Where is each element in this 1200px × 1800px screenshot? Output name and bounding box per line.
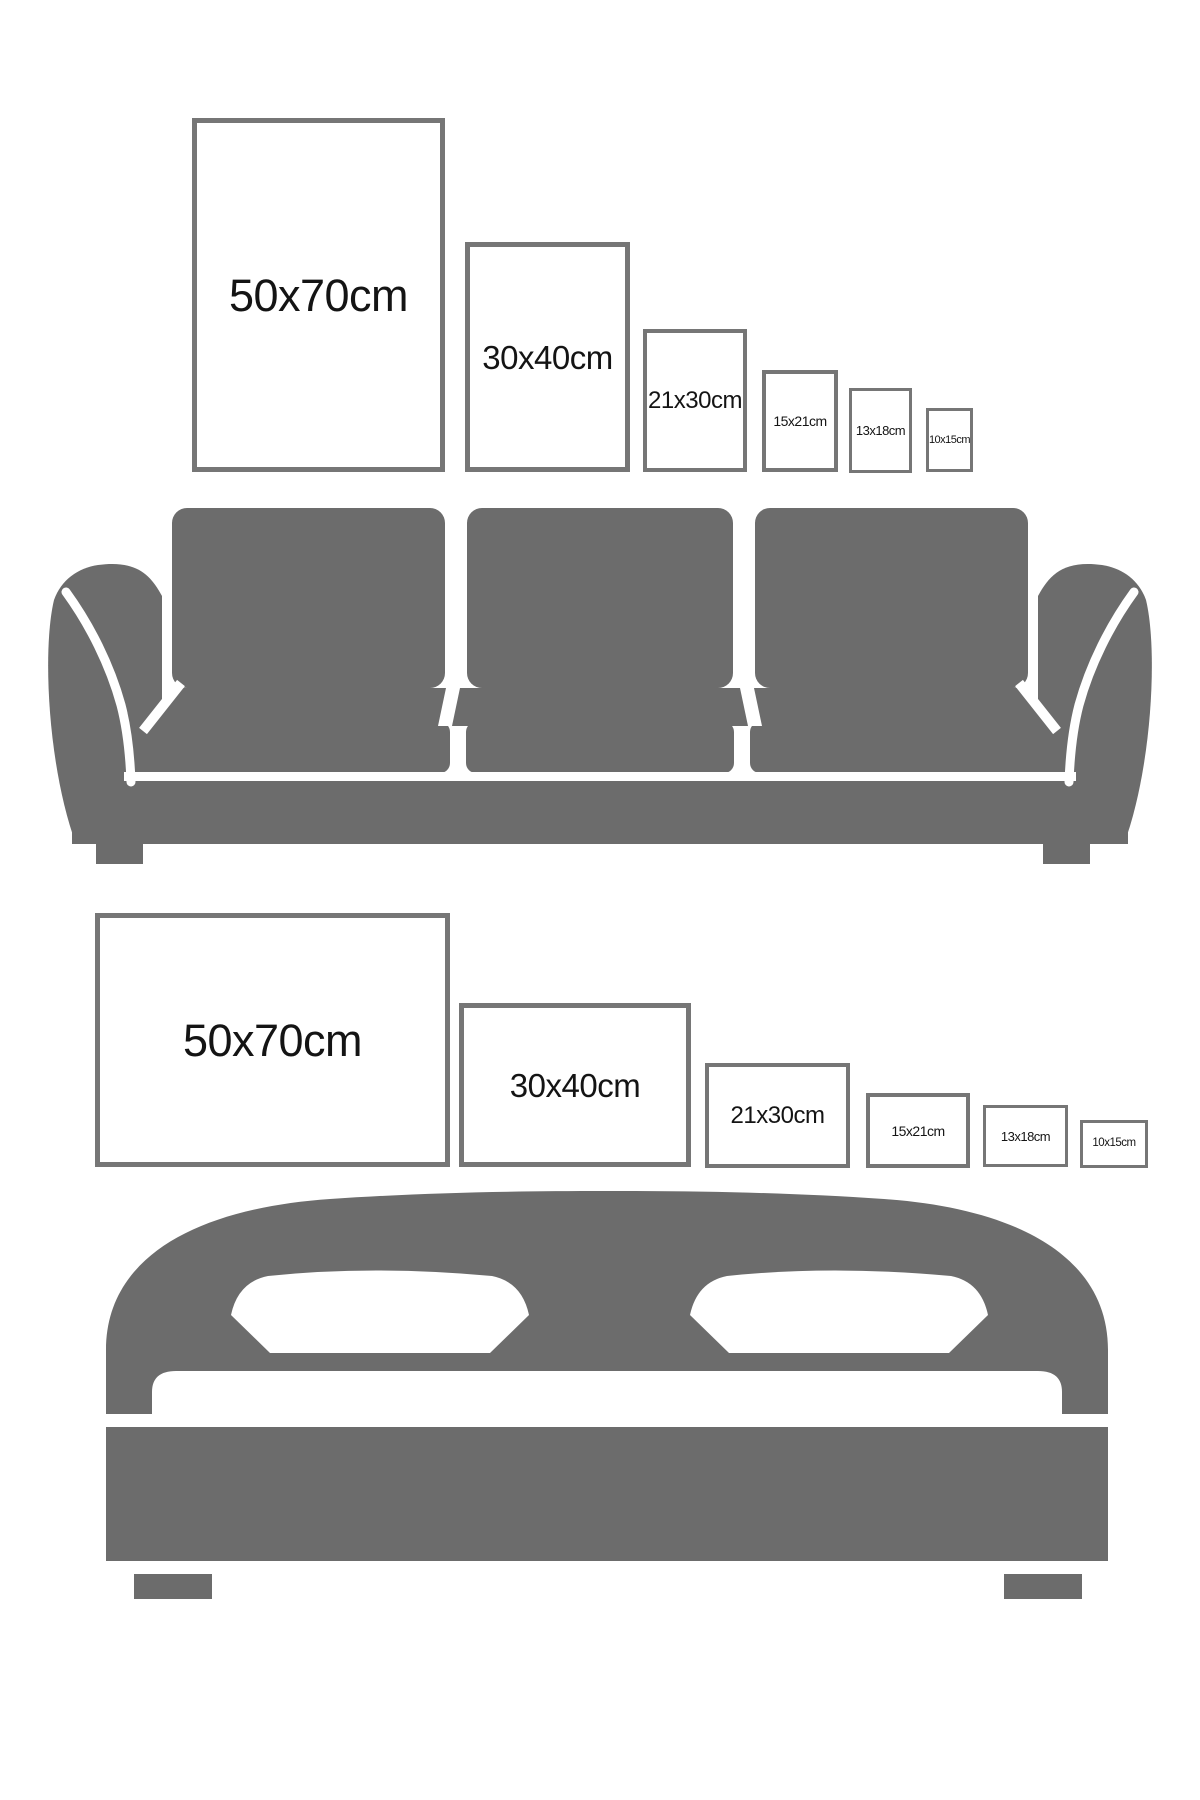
bed-foot xyxy=(1004,1574,1082,1599)
bed-pillow-right xyxy=(690,1271,988,1354)
size-frame-21x30-portrait: 21x30cm xyxy=(643,329,747,472)
size-frame-10x15-portrait: 10x15cm xyxy=(926,408,973,472)
size-label-21x30: 21x30cm xyxy=(731,1104,825,1128)
size-label-50x70: 50x70cm xyxy=(229,273,408,318)
sofa-base xyxy=(72,781,1128,844)
sofa-seat-cushion xyxy=(138,722,450,773)
size-label-15x21: 15x21cm xyxy=(773,414,826,428)
sofa-seat-cushion xyxy=(750,722,1056,773)
bed-base xyxy=(106,1427,1108,1561)
sofa-icon xyxy=(48,508,1152,864)
sofa-seat-deck xyxy=(148,688,1050,726)
size-label-15x21: 15x21cm xyxy=(891,1124,944,1138)
size-frame-50x70-portrait: 50x70cm xyxy=(192,118,445,472)
sofa-arm-right xyxy=(1038,564,1152,844)
sofa-back-cushion xyxy=(755,508,1028,688)
sofa-foot xyxy=(96,844,143,864)
size-label-13x18: 13x18cm xyxy=(856,424,905,437)
bed-icon xyxy=(106,1191,1108,1599)
size-frame-30x40-portrait: 30x40cm xyxy=(465,242,630,472)
size-frame-13x18-landscape: 13x18cm xyxy=(983,1105,1068,1167)
sofa-base-gap xyxy=(124,772,1076,781)
size-label-50x70: 50x70cm xyxy=(183,1018,362,1063)
sofa-back-cushion xyxy=(172,508,445,688)
sofa-foot xyxy=(1043,844,1090,864)
size-label-13x18: 13x18cm xyxy=(1001,1130,1050,1143)
size-label-21x30: 21x30cm xyxy=(648,389,742,413)
size-frame-13x18-portrait: 13x18cm xyxy=(849,388,912,473)
size-comparison-infographic: 50x70cm 30x40cm 21x30cm 15x21cm 13x18cm … xyxy=(0,0,1200,1800)
size-frame-15x21-landscape: 15x21cm xyxy=(866,1093,970,1168)
size-label-30x40: 30x40cm xyxy=(482,341,612,374)
size-label-30x40: 30x40cm xyxy=(510,1069,640,1102)
size-frame-21x30-landscape: 21x30cm xyxy=(705,1063,850,1168)
size-frame-30x40-landscape: 30x40cm xyxy=(459,1003,691,1167)
sofa-seat-cushion xyxy=(466,722,734,773)
size-frame-50x70-landscape: 50x70cm xyxy=(95,913,450,1167)
size-label-10x15: 10x15cm xyxy=(929,435,970,446)
sofa-back-cushion xyxy=(467,508,733,688)
size-frame-10x15-landscape: 10x15cm xyxy=(1080,1120,1148,1168)
size-frame-15x21-portrait: 15x21cm xyxy=(762,370,838,472)
size-label-10x15: 10x15cm xyxy=(1092,1138,1135,1150)
bed-pillow-left xyxy=(231,1271,529,1354)
sofa-arm-left xyxy=(48,564,162,844)
bed-foot xyxy=(134,1574,212,1599)
